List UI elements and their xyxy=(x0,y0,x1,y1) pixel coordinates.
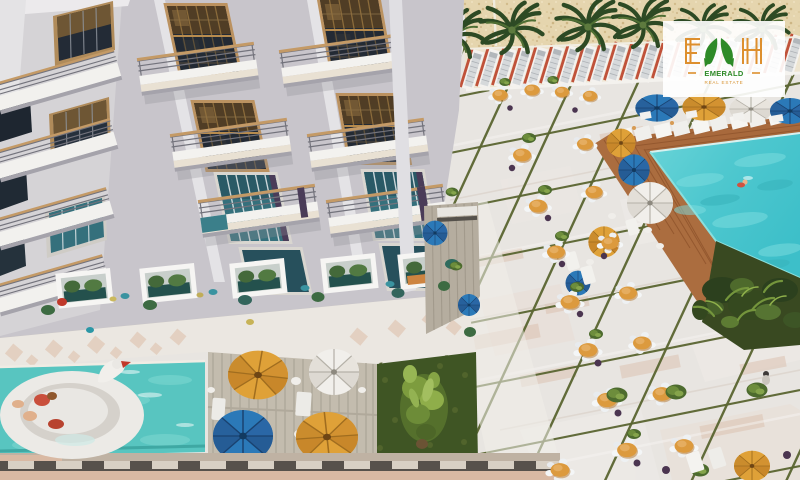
svg-text:REAL ESTATE: REAL ESTATE xyxy=(704,80,743,85)
svg-text:EMERALD: EMERALD xyxy=(704,69,743,78)
